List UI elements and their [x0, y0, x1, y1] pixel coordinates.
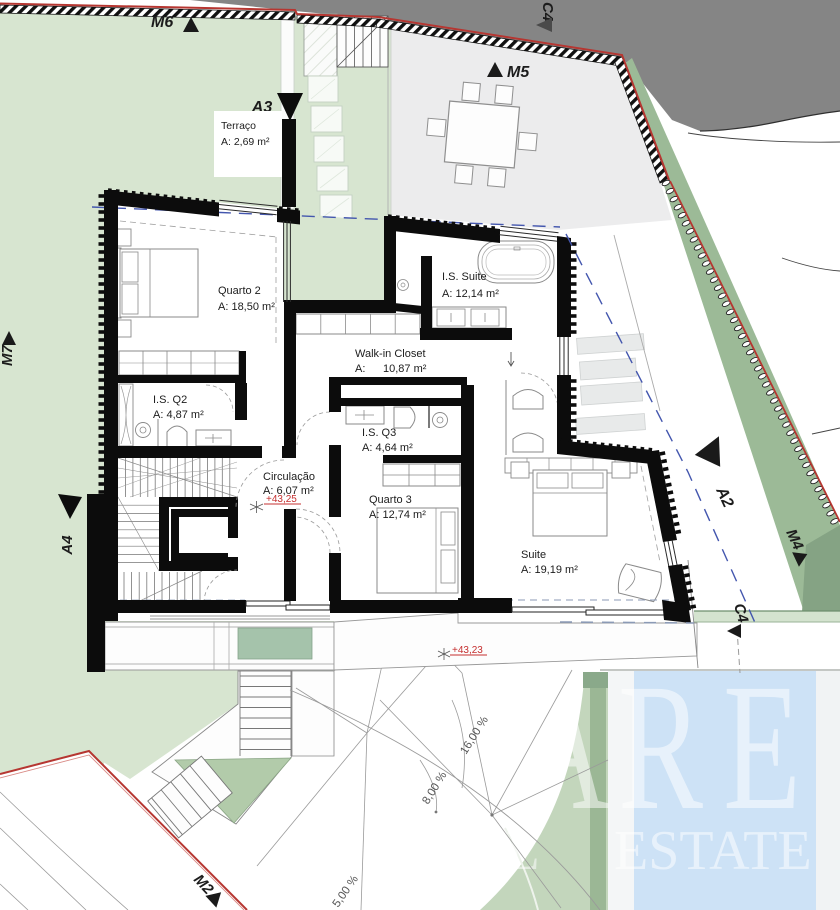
- svg-text:A: 18,50 m²: A: 18,50 m²: [218, 301, 275, 313]
- svg-text:A: 12,74 m²: A: 12,74 m²: [369, 509, 426, 521]
- svg-text:Quarto 3: Quarto 3: [369, 494, 412, 506]
- svg-text:R: R: [618, 646, 703, 848]
- svg-text:A: 4,64 m²: A: 4,64 m²: [362, 442, 413, 454]
- svg-text:I.S. Suite: I.S. Suite: [442, 271, 487, 283]
- svg-text:ESTATE: ESTATE: [614, 820, 812, 882]
- svg-text:C4: C4: [539, 2, 556, 22]
- svg-text:E: E: [723, 646, 801, 848]
- svg-text:A4: A4: [59, 535, 76, 556]
- svg-text:A: A: [518, 646, 610, 848]
- svg-text:+43,25: +43,25: [266, 494, 297, 505]
- svg-text:M7: M7: [0, 345, 16, 366]
- svg-text:+43,23: +43,23: [452, 645, 483, 656]
- svg-text:A: 19,19 m²: A: 19,19 m²: [521, 564, 578, 576]
- svg-text:M6: M6: [151, 14, 173, 31]
- svg-text:A: 2,69 m²: A: 2,69 m²: [221, 136, 270, 148]
- svg-text:A: 12,14 m²: A: 12,14 m²: [442, 288, 499, 300]
- svg-text:I.S. Q3: I.S. Q3: [362, 427, 396, 439]
- svg-text:Walk-in Closet: Walk-in Closet: [355, 348, 426, 360]
- svg-text:Suite: Suite: [521, 549, 546, 561]
- svg-text:A:: A:: [355, 363, 365, 375]
- svg-text:M5: M5: [507, 64, 530, 81]
- svg-text:Circulação: Circulação: [263, 471, 315, 483]
- svg-text:Quarto 2: Quarto 2: [218, 285, 261, 297]
- svg-text:10,87 m²: 10,87 m²: [383, 363, 427, 375]
- svg-text:I.S. Q2: I.S. Q2: [153, 394, 187, 406]
- svg-text:A: 4,87 m²: A: 4,87 m²: [153, 409, 204, 421]
- svg-text:Terraço: Terraço: [221, 120, 256, 132]
- svg-text:REAL: REAL: [394, 820, 540, 882]
